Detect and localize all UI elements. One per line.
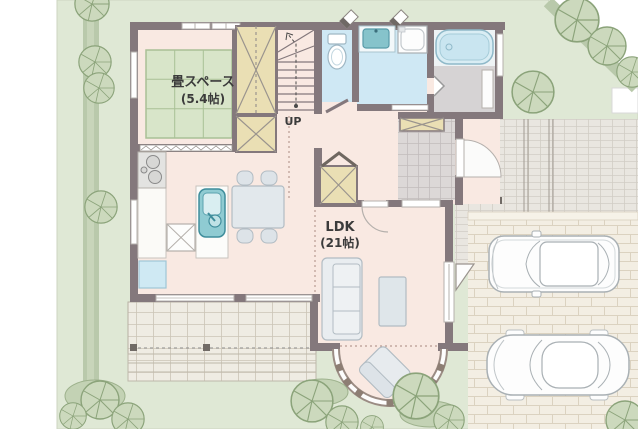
sofa — [322, 258, 362, 340]
dining-chair — [261, 229, 277, 243]
car-mirror — [532, 231, 541, 237]
tatami-room-label: 畳スペース — [171, 75, 234, 90]
washroom-sliding-door — [392, 105, 428, 110]
window — [402, 200, 440, 207]
window — [497, 34, 503, 76]
car-2 — [487, 330, 629, 400]
terrace-step — [128, 363, 316, 372]
terrace-step — [128, 372, 316, 381]
lot-notch — [612, 88, 638, 113]
terrace-post — [203, 344, 210, 351]
floor-plan-canvas: 畳スペース (5.4帖) UP LDK (21帖) — [0, 0, 638, 429]
bathtub-icon — [436, 30, 493, 64]
car-mirror — [532, 291, 541, 297]
stairs-up-label: UP — [285, 115, 302, 128]
dining-chair — [261, 171, 277, 185]
tree-icon — [84, 73, 114, 103]
tree-icon — [60, 403, 87, 429]
bath-counter — [482, 70, 493, 108]
tree-icon — [85, 191, 117, 223]
stove-icon — [138, 152, 166, 188]
terrace-step — [128, 354, 316, 363]
washroom-fixtures — [359, 26, 427, 53]
sliding-shoji — [140, 145, 232, 151]
tree-icon — [112, 403, 144, 429]
tree-icon — [588, 27, 626, 65]
window — [182, 23, 210, 29]
toilet-icon — [328, 34, 346, 69]
stairs — [278, 30, 314, 114]
window — [131, 52, 137, 98]
tatami-size-label: (5.4帖) — [181, 91, 225, 106]
refrigerator-icon — [139, 261, 166, 288]
window — [131, 200, 137, 244]
dining-table — [232, 186, 284, 228]
terrace-post — [130, 344, 137, 351]
floor-plan-drawing: 畳スペース (5.4帖) UP LDK (21帖) — [0, 0, 638, 429]
car-1 — [489, 231, 619, 297]
ldk-room-label: LDK — [325, 220, 355, 235]
tree-icon — [434, 405, 464, 429]
dining-chair — [237, 229, 253, 243]
terrace — [128, 302, 316, 381]
dining-chair — [237, 171, 253, 185]
ldk-size-label: (21帖) — [320, 235, 360, 250]
tree-icon — [512, 71, 554, 113]
washing-machine-icon — [398, 26, 427, 53]
kitchen-island — [196, 186, 228, 258]
coffee-table — [379, 277, 406, 326]
tree-icon — [393, 373, 439, 419]
pantry-box — [167, 224, 195, 251]
